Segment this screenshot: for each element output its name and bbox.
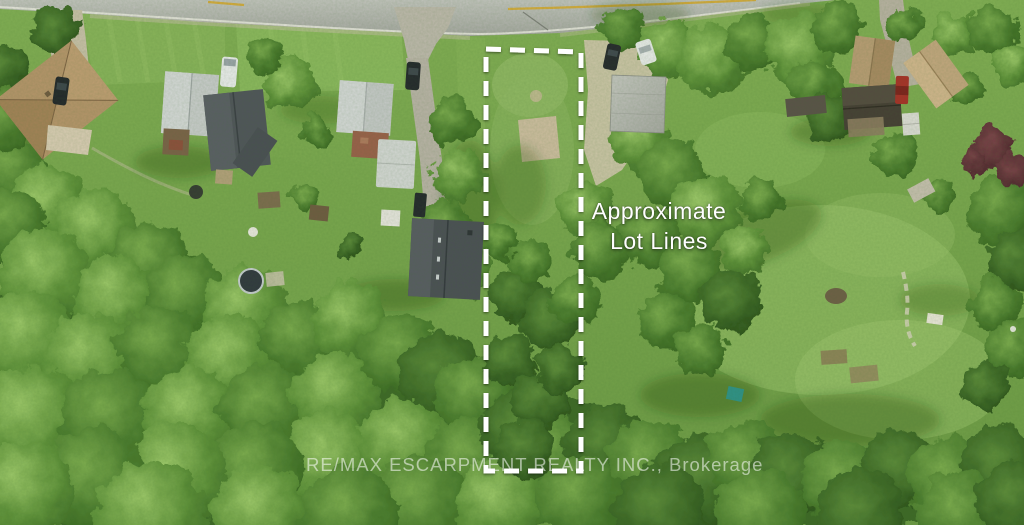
photo-grain [0,0,1024,525]
aerial-photo: Approximate Lot Lines RE/MAX ESCARPMENT … [0,0,1024,525]
aerial-scene [0,0,1024,525]
